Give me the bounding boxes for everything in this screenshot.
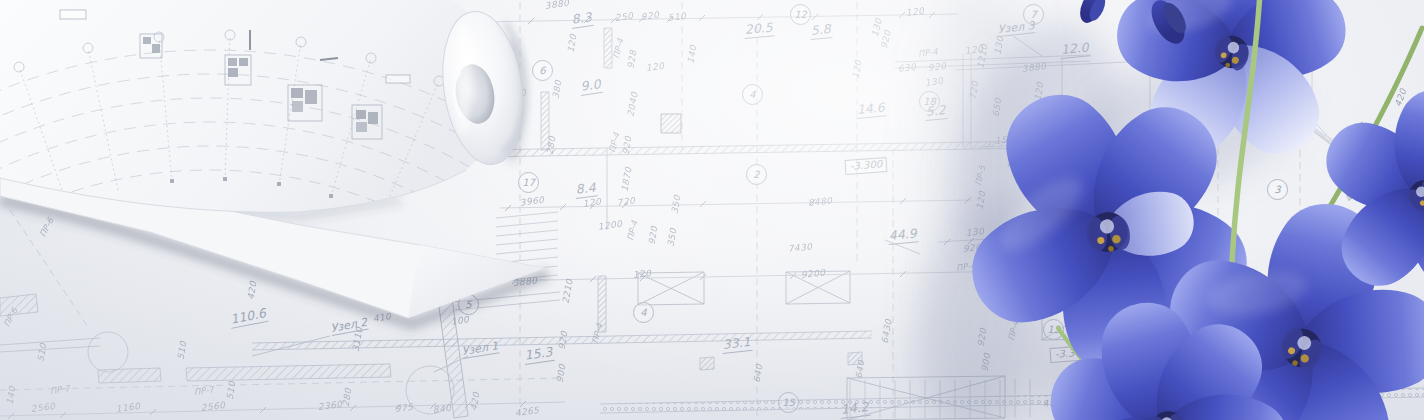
flower-bud [1075, 0, 1110, 27]
delphinium-flowers [0, 0, 1424, 420]
blueprint-flower-banner: 61241721875415133-3.300-3.300Узел 1Узел … [0, 0, 1424, 420]
